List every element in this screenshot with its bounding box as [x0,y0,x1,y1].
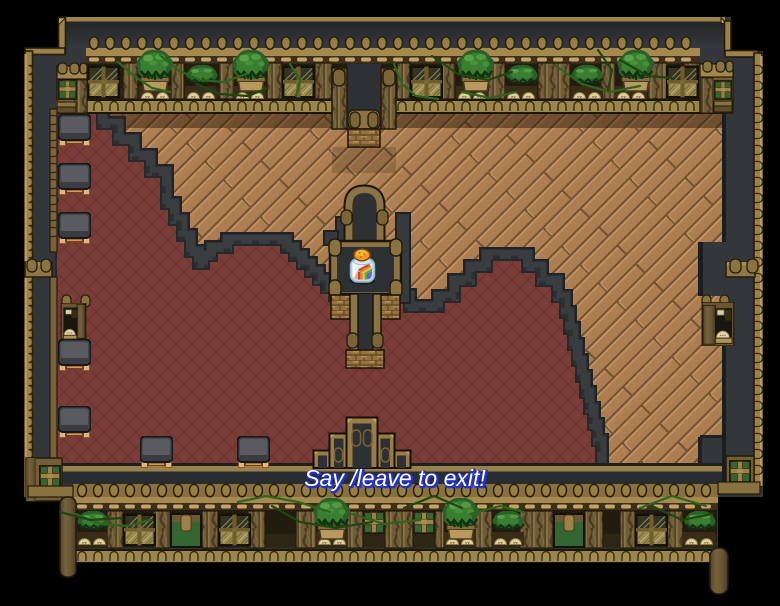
svg-text:Say /leave to exit!: Say /leave to exit! [304,465,486,491]
